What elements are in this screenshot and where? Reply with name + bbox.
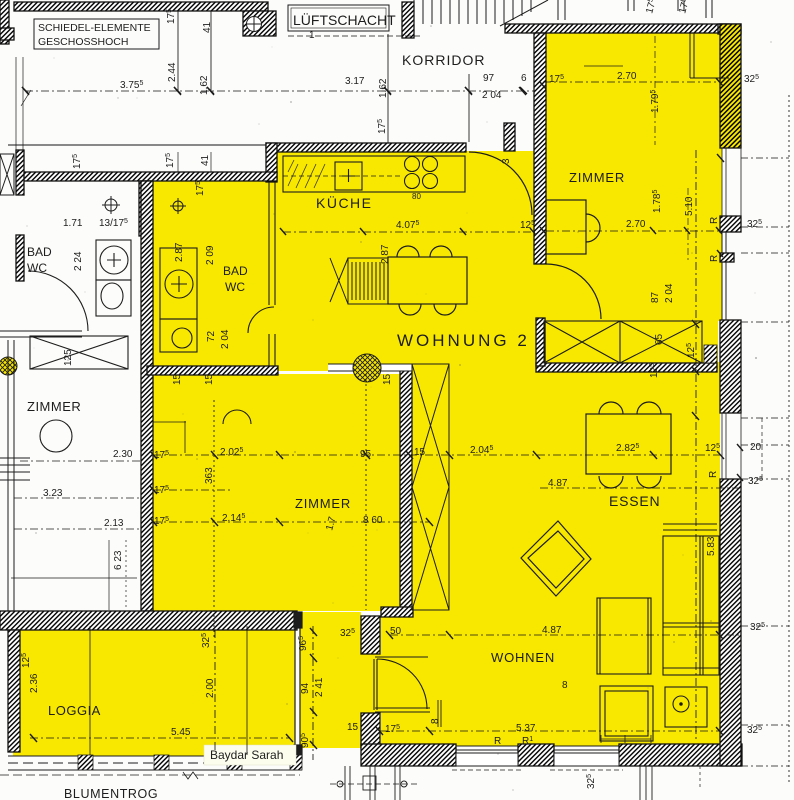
svg-text:50: 50	[390, 626, 402, 637]
svg-text:2.44: 2.44	[167, 62, 178, 82]
svg-text:2 87: 2 87	[380, 244, 391, 264]
svg-text:2.13: 2.13	[104, 518, 124, 529]
svg-text:363: 363	[204, 467, 215, 484]
svg-text:94: 94	[300, 682, 311, 694]
svg-text:15: 15	[172, 373, 183, 385]
svg-text:2 41: 2 41	[314, 677, 325, 697]
svg-text:2 04: 2 04	[482, 90, 502, 101]
svg-text:5.10: 5.10	[684, 196, 695, 216]
svg-text:WOHNEN: WOHNEN	[491, 650, 555, 665]
svg-text:2 04: 2 04	[664, 283, 675, 303]
svg-text:80: 80	[412, 192, 421, 201]
svg-text:2.00: 2.00	[205, 678, 216, 698]
svg-text:2 04: 2 04	[220, 329, 231, 349]
svg-text:72: 72	[206, 330, 217, 342]
svg-text:15: 15	[347, 722, 359, 733]
svg-text:ZIMMER: ZIMMER	[27, 399, 81, 414]
svg-text:20: 20	[750, 442, 762, 453]
svg-text:8: 8	[562, 680, 568, 691]
svg-text:LÜFTSCHACHT: LÜFTSCHACHT	[293, 11, 396, 28]
svg-text:13/175: 13/175	[99, 218, 128, 229]
svg-text:2.70: 2.70	[617, 71, 637, 82]
svg-text:8 60: 8 60	[363, 515, 383, 526]
svg-text:87: 87	[650, 291, 661, 303]
svg-text:2.36: 2.36	[29, 673, 40, 693]
svg-text:97: 97	[483, 73, 495, 84]
svg-text:ESSEN: ESSEN	[609, 493, 660, 509]
svg-text:1.62: 1.62	[199, 75, 210, 95]
svg-text:ZIMMER: ZIMMER	[295, 496, 351, 511]
svg-text:8: 8	[430, 718, 441, 724]
svg-text:3: 3	[501, 158, 512, 164]
svg-text:5.45: 5.45	[171, 727, 191, 738]
svg-text:5.37: 5.37	[516, 723, 536, 734]
svg-text:3.17: 3.17	[345, 76, 365, 87]
svg-text:BLUMENTROG: BLUMENTROG	[64, 787, 158, 800]
svg-text:1.71: 1.71	[63, 218, 83, 229]
svg-text:2 09: 2 09	[205, 245, 216, 265]
svg-text:6 23: 6 23	[113, 550, 124, 570]
svg-text:15: 15	[204, 373, 215, 385]
svg-text:KORRIDOR: KORRIDOR	[402, 52, 485, 68]
svg-text:BAD: BAD	[27, 245, 52, 259]
svg-text:BAD: BAD	[223, 264, 248, 278]
svg-text:ZIMMER: ZIMMER	[569, 170, 625, 185]
svg-text:LOGGIA: LOGGIA	[48, 703, 101, 718]
svg-text:65: 65	[654, 333, 665, 345]
svg-text:15: 15	[382, 373, 393, 385]
svg-text:15: 15	[414, 447, 426, 458]
svg-text:2.30: 2.30	[113, 449, 133, 460]
svg-text:4.87: 4.87	[548, 478, 568, 489]
svg-text:41: 41	[202, 21, 213, 33]
svg-text:SCHIEDEL-ELEMENTE: SCHIEDEL-ELEMENTE	[38, 22, 151, 34]
svg-text:2 24: 2 24	[73, 251, 84, 271]
svg-text:2.87: 2.87	[174, 242, 185, 262]
svg-text:R: R	[708, 471, 719, 478]
svg-text:125: 125	[63, 349, 74, 366]
svg-text:GESCHOSSHOCH: GESCHOSSHOCH	[38, 36, 128, 48]
svg-text:6: 6	[521, 73, 527, 84]
svg-text:5.83: 5.83	[706, 536, 717, 556]
svg-text:2.70: 2.70	[626, 219, 646, 230]
svg-text:R: R	[494, 736, 501, 747]
svg-text:WOHNUNG 2: WOHNUNG 2	[397, 331, 530, 350]
svg-text:WC: WC	[225, 280, 245, 294]
svg-text:41: 41	[200, 154, 211, 166]
svg-text:4.87: 4.87	[542, 625, 562, 636]
svg-text:R: R	[709, 255, 720, 262]
svg-text:KÜCHE: KÜCHE	[316, 194, 373, 211]
svg-text:1.62: 1.62	[378, 78, 389, 98]
svg-text:3.23: 3.23	[43, 488, 63, 499]
svg-text:R: R	[709, 217, 720, 224]
svg-text:1: 1	[309, 30, 315, 41]
